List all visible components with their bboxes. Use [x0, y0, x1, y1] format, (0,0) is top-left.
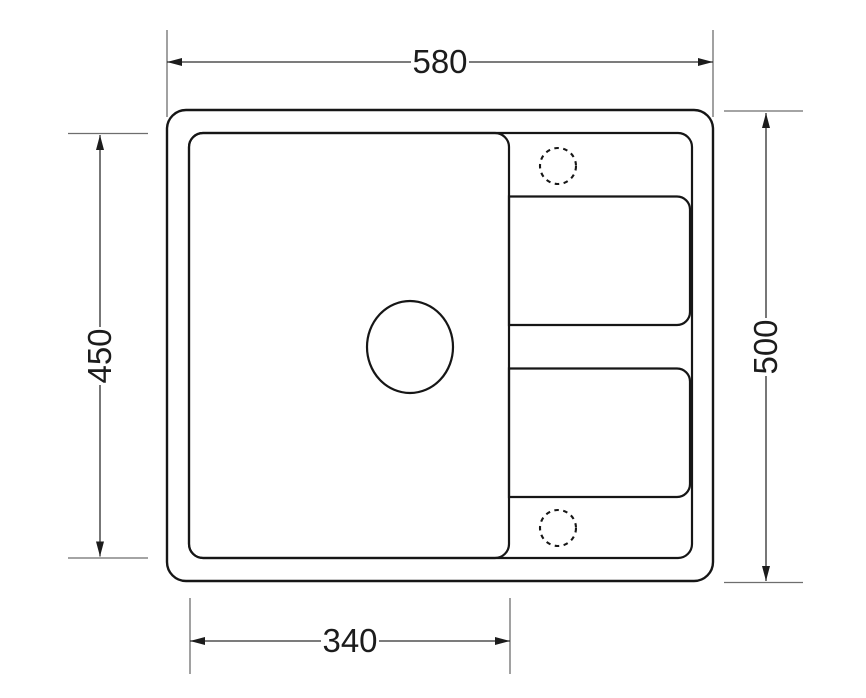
dim-bowl-width: 340: [190, 598, 510, 674]
drainer-panel-lower: [509, 369, 690, 498]
faucet-hole-top: [540, 148, 576, 184]
drainer-panel-upper: [509, 197, 690, 326]
dim-label-bowl-height: 450: [81, 328, 118, 383]
sink-outer-rim: [167, 110, 713, 581]
dim-overall-width: 580: [167, 30, 713, 117]
sink-dimension-drawing: 580 450 500 34: [0, 0, 866, 698]
dim-label-bowl-width: 340: [322, 622, 377, 659]
drain-hole: [367, 301, 453, 393]
drawing-canvas: 580 450 500 34: [0, 0, 866, 698]
dim-overall-height: 500: [724, 111, 803, 583]
dim-label-overall-width: 580: [412, 43, 467, 80]
dim-bowl-height: 450: [68, 134, 148, 559]
sink-body: [167, 110, 713, 581]
faucet-hole-bottom: [540, 510, 576, 546]
main-bowl: [189, 133, 509, 558]
dim-label-overall-height: 500: [747, 319, 784, 374]
